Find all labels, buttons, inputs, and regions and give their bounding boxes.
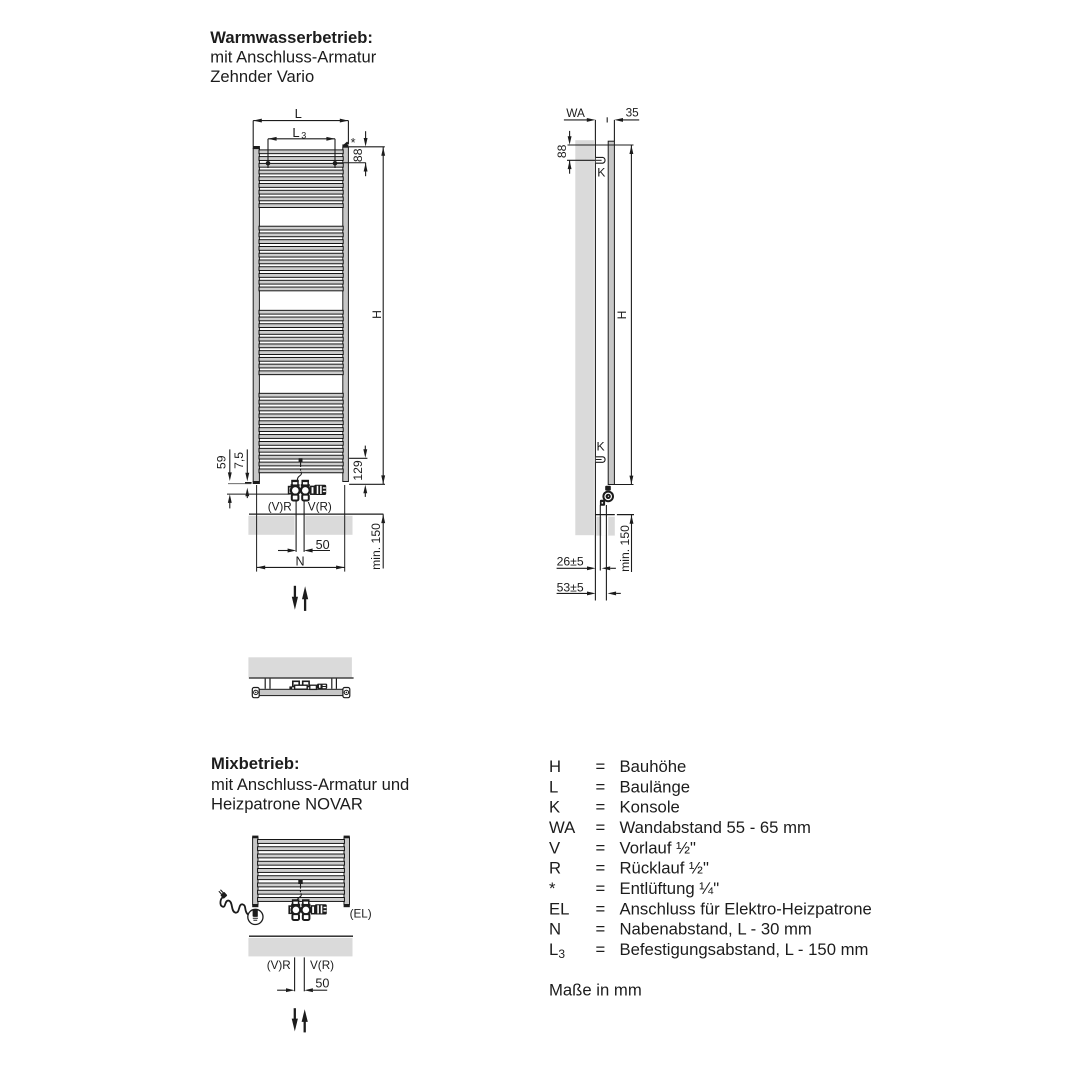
svg-text:WA: WA xyxy=(566,106,585,120)
svg-text:59: 59 xyxy=(215,455,229,469)
svg-text:V(R): V(R) xyxy=(310,959,334,972)
svg-text:mit Anschluss-Armatur und: mit Anschluss-Armatur und xyxy=(211,775,409,794)
svg-text:R: R xyxy=(549,859,561,878)
svg-text:7,5: 7,5 xyxy=(232,452,246,469)
svg-text:EL: EL xyxy=(549,899,569,918)
svg-text:H: H xyxy=(615,311,629,320)
svg-text:Bauhöhe: Bauhöhe xyxy=(620,757,687,776)
svg-text:H: H xyxy=(549,757,561,776)
svg-text:(EL): (EL) xyxy=(350,908,372,921)
svg-text:35: 35 xyxy=(626,106,640,120)
svg-text:(V)R: (V)R xyxy=(268,500,292,513)
svg-text:(V)R: (V)R xyxy=(267,959,291,972)
svg-text:=: = xyxy=(596,940,606,959)
svg-text:Heizpatrone NOVAR: Heizpatrone NOVAR xyxy=(211,795,363,814)
svg-text:=: = xyxy=(596,818,606,837)
svg-text:Anschluss für Elektro-Heizpatr: Anschluss für Elektro-Heizpatrone xyxy=(620,899,872,918)
svg-text:=: = xyxy=(596,879,606,898)
svg-text:L: L xyxy=(295,106,302,121)
svg-text:26±5: 26±5 xyxy=(557,555,584,569)
svg-text:=: = xyxy=(596,899,606,918)
svg-text:H: H xyxy=(370,310,384,319)
svg-text:50: 50 xyxy=(315,977,329,991)
svg-text:=: = xyxy=(596,838,606,857)
svg-text:Baulänge: Baulänge xyxy=(620,777,691,796)
svg-text:Wandabstand 55 - 65 mm: Wandabstand 55 - 65 mm xyxy=(620,818,811,837)
svg-text:129: 129 xyxy=(351,460,365,481)
svg-text:=: = xyxy=(596,920,606,939)
svg-text:Befestigungsabstand, L - 150 m: Befestigungsabstand, L - 150 mm xyxy=(620,940,869,959)
svg-text:Zehnder Vario: Zehnder Vario xyxy=(210,67,314,86)
svg-text:Warmwasserbetrieb:: Warmwasserbetrieb: xyxy=(210,28,373,47)
svg-text:88: 88 xyxy=(351,148,365,162)
svg-text:N: N xyxy=(549,920,561,939)
svg-text:=: = xyxy=(596,757,606,776)
svg-text:Konsole: Konsole xyxy=(620,798,680,817)
svg-text:L: L xyxy=(292,125,299,140)
svg-text:L: L xyxy=(549,777,558,796)
svg-text:3: 3 xyxy=(558,947,565,961)
svg-text:Rücklauf ½": Rücklauf ½" xyxy=(620,859,709,878)
svg-text:Mixbetrieb:: Mixbetrieb: xyxy=(211,754,300,773)
svg-text:min. 150: min. 150 xyxy=(369,523,383,570)
svg-text:Nabenabstand, L - 30 mm: Nabenabstand, L - 30 mm xyxy=(620,920,812,939)
svg-text:L: L xyxy=(549,940,558,959)
svg-text:Vorlauf ½": Vorlauf ½" xyxy=(620,838,697,857)
svg-text:=: = xyxy=(596,859,606,878)
svg-text:*: * xyxy=(351,136,356,150)
svg-text:K: K xyxy=(597,166,605,180)
svg-text:min. 150: min. 150 xyxy=(618,525,632,572)
svg-text:*: * xyxy=(549,879,556,898)
svg-text:K: K xyxy=(597,440,605,454)
svg-text:V(R): V(R) xyxy=(308,500,332,513)
svg-text:=: = xyxy=(596,798,606,817)
svg-text:3: 3 xyxy=(301,131,306,141)
svg-text:88: 88 xyxy=(555,144,569,158)
svg-text:mit Anschluss-Armatur: mit Anschluss-Armatur xyxy=(210,47,376,66)
svg-text:V: V xyxy=(549,838,561,857)
svg-text:N: N xyxy=(295,554,304,568)
svg-text:Maße in mm: Maße in mm xyxy=(549,981,642,1000)
svg-text:=: = xyxy=(596,777,606,796)
svg-text:53±5: 53±5 xyxy=(557,581,584,595)
svg-text:Entlüftung ¼": Entlüftung ¼" xyxy=(620,879,720,898)
svg-text:WA: WA xyxy=(549,818,576,837)
svg-text:K: K xyxy=(549,798,560,817)
